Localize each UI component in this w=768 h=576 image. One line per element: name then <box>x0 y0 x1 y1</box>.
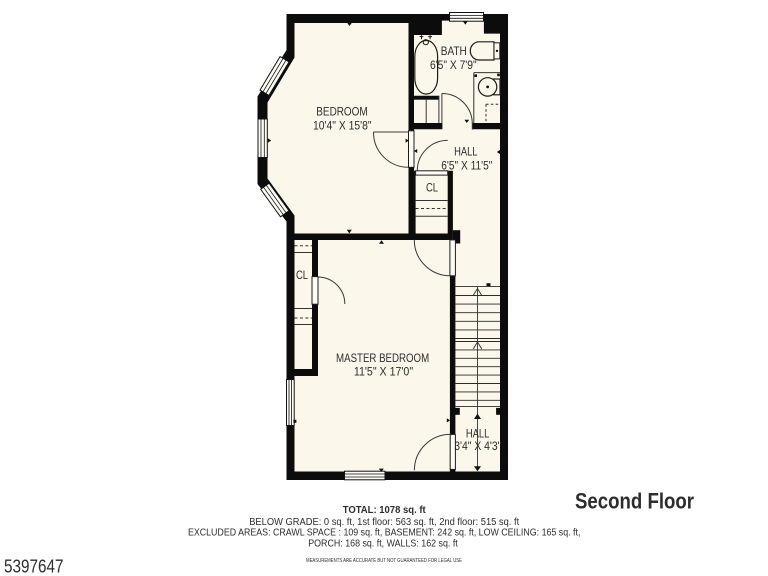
svg-text:BELOW GRADE: 0 sq. ft, 1st flo: BELOW GRADE: 0 sq. ft, 1st floor: 563 sq… <box>249 517 519 528</box>
svg-text:EXCLUDED AREAS: CRAWL SPACE :: EXCLUDED AREAS: CRAWL SPACE : 109 sq. ft… <box>188 528 581 539</box>
svg-text:6'5" X 11'5": 6'5" X 11'5" <box>441 160 492 173</box>
svg-text:CL: CL <box>296 269 308 282</box>
svg-text:10'4" X 15'8": 10'4" X 15'8" <box>313 120 372 133</box>
svg-text:PORCH: 168 sq. ft, WALLS: 162: PORCH: 168 sq. ft, WALLS: 162 sq. ft <box>308 539 458 550</box>
svg-text:6'5" X 7'9": 6'5" X 7'9" <box>430 59 477 72</box>
svg-text:HALL: HALL <box>454 146 478 159</box>
svg-text:3'4" X 4'3": 3'4" X 4'3" <box>454 440 501 453</box>
svg-text:BEDROOM: BEDROOM <box>316 106 367 119</box>
svg-text:5397647: 5397647 <box>4 556 63 576</box>
svg-text:BATH: BATH <box>441 45 467 58</box>
svg-text:MASTER BEDROOM: MASTER BEDROOM <box>336 352 429 365</box>
svg-text:MEASUREMENTS ARE ACCURATE BUT: MEASUREMENTS ARE ACCURATE BUT NOT GUARAN… <box>306 558 462 564</box>
svg-text:CL: CL <box>426 181 438 194</box>
svg-text:11'5" X 17'0": 11'5" X 17'0" <box>354 365 413 378</box>
svg-text:Second Floor: Second Floor <box>575 489 694 514</box>
svg-text:TOTAL: 1078 sq. ft: TOTAL: 1078 sq. ft <box>343 505 427 516</box>
svg-text:HALL: HALL <box>466 427 490 440</box>
